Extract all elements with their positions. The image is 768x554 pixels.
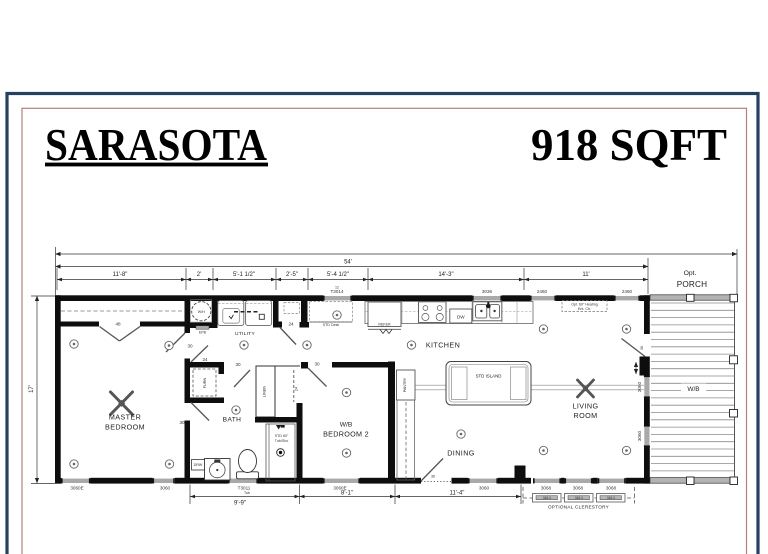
svg-text:Opt. 60" Heating: Opt. 60" Heating: [571, 303, 597, 307]
svg-text:UTILITY: UTILITY: [235, 331, 255, 337]
svg-text:LINEN: LINEN: [263, 386, 267, 397]
svg-text:9'-9": 9'-9": [234, 501, 246, 507]
svg-text:STD Desk: STD Desk: [323, 323, 340, 327]
svg-text:W/B: W/B: [687, 386, 699, 393]
svg-text:DRW: DRW: [194, 463, 203, 467]
svg-text:FURN: FURN: [203, 377, 207, 388]
svg-text:11': 11': [582, 272, 589, 278]
svg-text:3614: 3614: [543, 496, 551, 500]
svg-text:PANTRY: PANTRY: [403, 377, 407, 392]
svg-text:3036: 3036: [482, 289, 493, 294]
svg-text:STD 60": STD 60": [275, 434, 289, 438]
svg-text:DW: DW: [457, 315, 465, 320]
svg-text:24: 24: [295, 387, 299, 391]
svg-text:3060: 3060: [637, 430, 642, 441]
svg-text:8'-1": 8'-1": [341, 491, 353, 497]
svg-text:17': 17': [29, 385, 35, 393]
svg-text:OPTIONAL CLERESTORY: OPTIONAL CLERESTORY: [548, 505, 609, 510]
svg-text:30: 30: [314, 362, 320, 367]
svg-text:3614: 3614: [575, 496, 583, 500]
svg-text:W/B: W/B: [340, 422, 353, 429]
svg-text:Ent. Ctr.: Ent. Ctr.: [578, 307, 591, 311]
svg-text:30: 30: [187, 344, 193, 349]
svg-text:REFER: REFER: [378, 323, 391, 327]
svg-text:30: 30: [179, 420, 185, 425]
svg-text:ROOM: ROOM: [574, 411, 598, 420]
svg-text:3068: 3068: [606, 486, 617, 491]
svg-text:T3014: T3014: [330, 289, 343, 294]
svg-text:STD ISLAND: STD ISLAND: [476, 374, 502, 379]
svg-text:2'-5": 2'-5": [286, 272, 298, 278]
svg-text:Tub: Tub: [244, 491, 250, 495]
svg-text:Tub/Sho: Tub/Sho: [275, 439, 288, 443]
svg-text:14'-3": 14'-3": [438, 272, 453, 278]
svg-text:3060E: 3060E: [70, 486, 83, 491]
svg-text:BEDROOM 2: BEDROOM 2: [323, 430, 369, 439]
svg-text:MASTER: MASTER: [109, 413, 141, 422]
svg-text:2': 2': [197, 272, 201, 278]
svg-text:5'-4 1/2": 5'-4 1/2": [327, 272, 349, 278]
svg-text:BATH: BATH: [223, 417, 242, 424]
svg-text:LIVING: LIVING: [573, 402, 599, 411]
svg-text:Opt.: Opt.: [684, 270, 697, 277]
svg-text:2460: 2460: [622, 289, 633, 294]
svg-text:11'-8": 11'-8": [113, 272, 128, 278]
svg-text:3068: 3068: [541, 486, 552, 491]
svg-text:BEDROOM: BEDROOM: [105, 423, 145, 432]
svg-text:3060E: 3060E: [333, 486, 346, 491]
svg-text:918 SQFT: 918 SQFT: [531, 120, 727, 170]
svg-text:24: 24: [288, 322, 294, 327]
svg-text:24: 24: [202, 357, 208, 362]
svg-text:DINING: DINING: [447, 449, 475, 458]
svg-text:2460: 2460: [537, 289, 548, 294]
svg-text:EPB: EPB: [199, 331, 207, 335]
svg-text:3068: 3068: [573, 486, 584, 491]
svg-text:3060: 3060: [479, 486, 490, 491]
svg-text:48: 48: [115, 322, 121, 327]
svg-text:W/H: W/H: [198, 310, 205, 314]
svg-text:3614: 3614: [607, 496, 615, 500]
svg-text:36: 36: [640, 346, 644, 350]
svg-text:30: 30: [235, 362, 241, 367]
svg-text:T3011: T3011: [238, 486, 251, 491]
svg-text:11'-4": 11'-4": [450, 491, 465, 497]
svg-text:SARASOTA: SARASOTA: [45, 120, 267, 170]
svg-text:36: 36: [431, 475, 435, 479]
svg-text:5'-1 1/2": 5'-1 1/2": [233, 272, 255, 278]
svg-text:54': 54': [344, 260, 352, 266]
svg-text:12: 12: [335, 286, 339, 290]
svg-text:3060: 3060: [637, 381, 642, 392]
svg-text:PORCH: PORCH: [677, 280, 708, 289]
svg-text:KITCHEN: KITCHEN: [426, 341, 460, 350]
svg-text:3060: 3060: [160, 486, 171, 491]
